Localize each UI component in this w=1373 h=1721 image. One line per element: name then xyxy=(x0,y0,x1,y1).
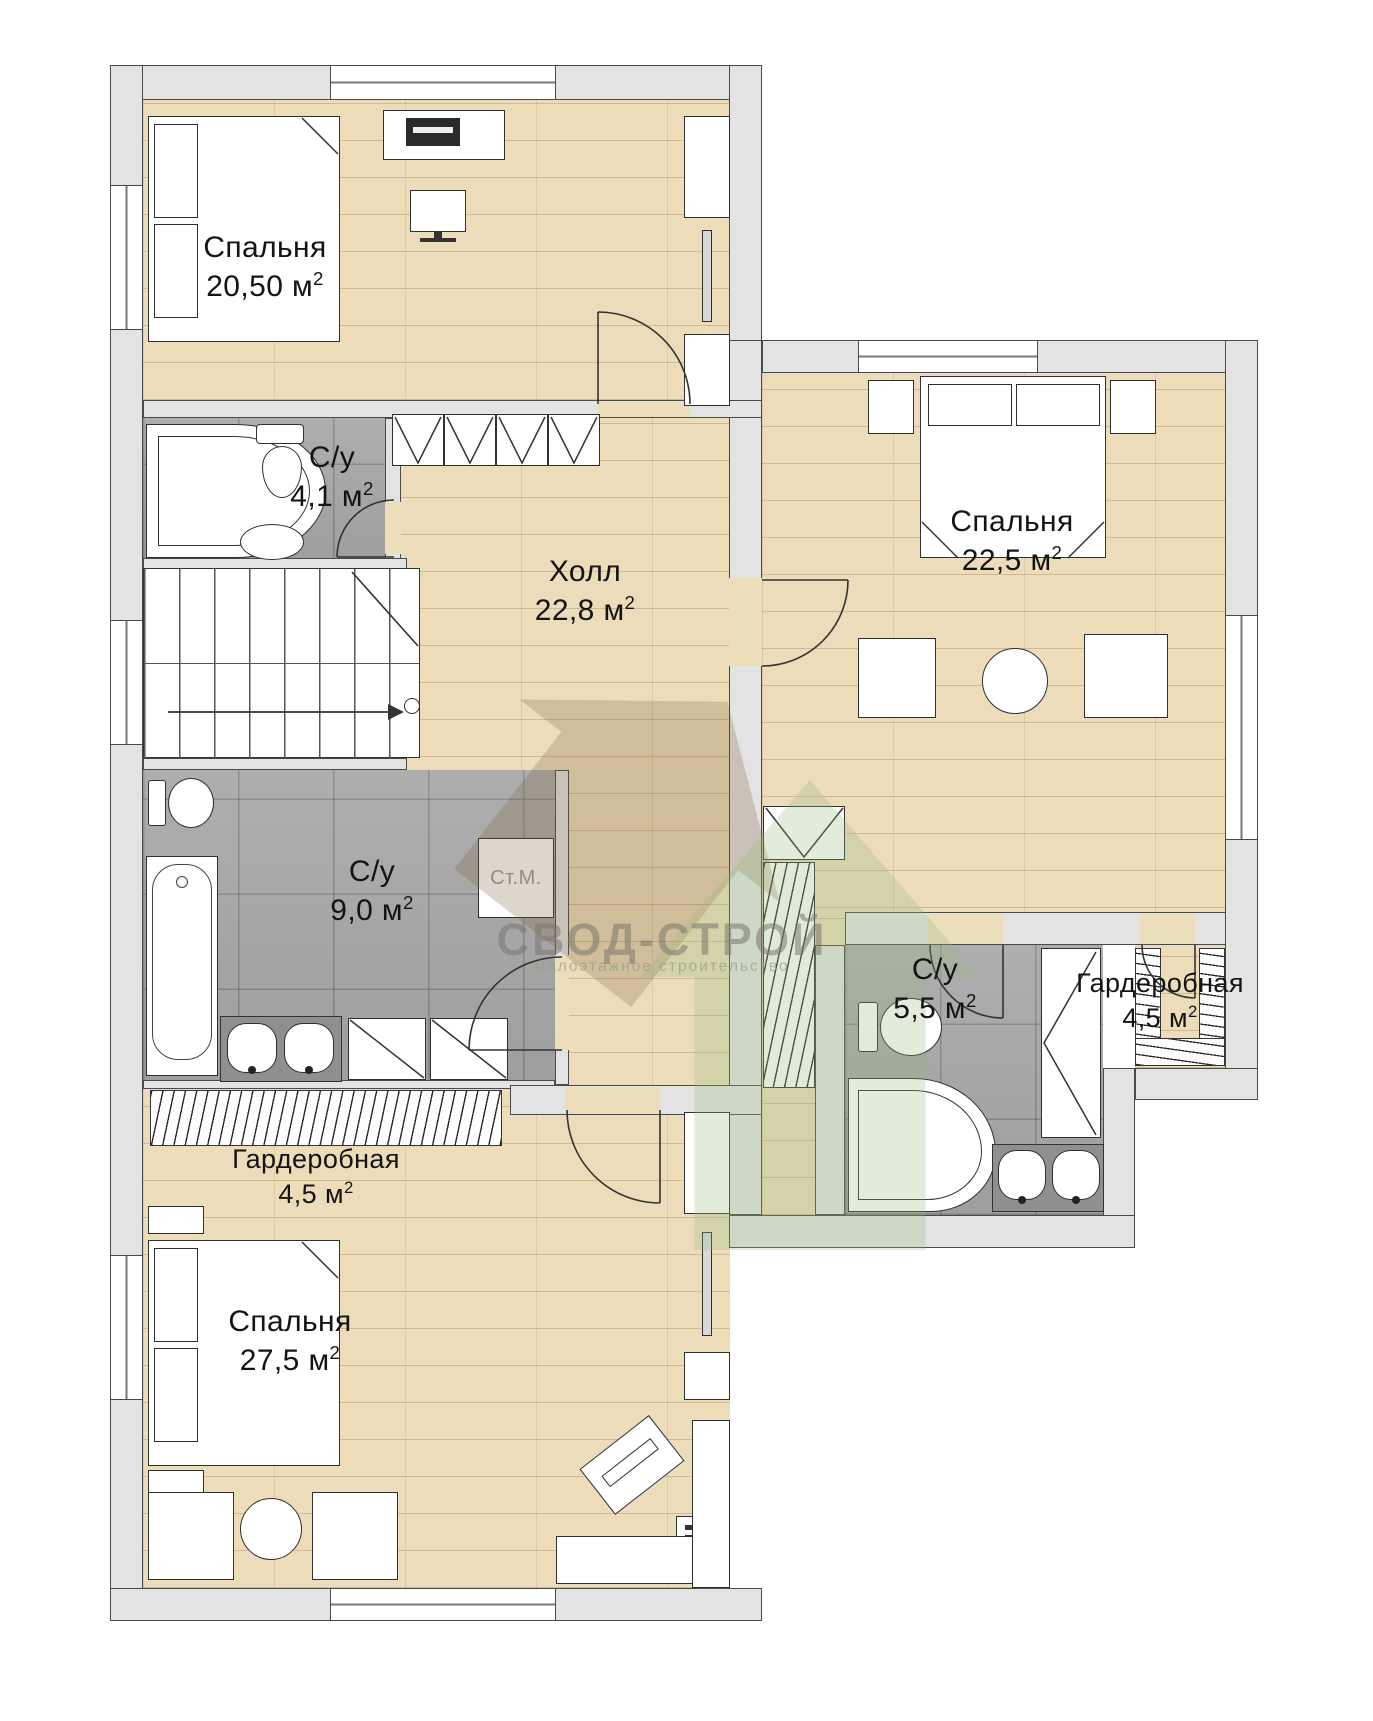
room-name: С/у xyxy=(252,852,492,891)
room-area: 4,5 м2 xyxy=(196,1177,436,1212)
room-label-wardrobe-left: Гардеробная 4,5 м2 xyxy=(196,1142,436,1212)
room-name: Гардеробная xyxy=(196,1142,436,1177)
cabinet-symbol xyxy=(684,1112,730,1214)
monitor-symbol xyxy=(410,190,466,232)
room-label-bedroom-bottom: Спальня 27,5 м2 xyxy=(170,1302,410,1380)
room-area: 9,0 м2 xyxy=(252,891,492,930)
faucet-dot xyxy=(305,1066,313,1074)
stair-flight-up xyxy=(144,569,419,663)
staircase xyxy=(143,568,420,758)
toilet-bowl-symbol xyxy=(168,778,214,828)
armchair-symbol xyxy=(1084,634,1168,718)
nightstand-symbol xyxy=(868,380,914,434)
room-area: 5,5 м2 xyxy=(815,989,1055,1028)
sink-symbol xyxy=(1052,1150,1100,1200)
sink-symbol xyxy=(240,524,304,560)
nightstand-symbol xyxy=(1110,380,1156,434)
faucet-dot xyxy=(248,1066,256,1074)
counter-symbol xyxy=(692,1420,730,1588)
room-area: 27,5 м2 xyxy=(170,1341,410,1380)
window-top xyxy=(330,65,556,100)
pillow-symbol xyxy=(154,124,198,218)
bath-cabinet-symbol xyxy=(430,1018,508,1080)
room-label-bedroom-top-left: Спальня 20,50 м2 xyxy=(145,228,385,306)
wardrobe-rack-symbol xyxy=(150,1090,502,1146)
faucet-dot xyxy=(1018,1196,1026,1204)
pillow-symbol xyxy=(928,384,1012,426)
room-label-hall: Холл 22,8 м2 xyxy=(465,552,705,630)
room-name: Гардеробная xyxy=(1040,966,1280,1001)
stair-handle-knob xyxy=(404,698,420,714)
window-top-right-block xyxy=(858,340,1038,373)
room-label-bedroom-top-right: Спальня 22,5 м2 xyxy=(892,502,1132,580)
wardrobe-rack-symbol xyxy=(1135,1038,1225,1066)
armchair-symbol xyxy=(148,1492,234,1580)
room-name: С/у xyxy=(815,950,1055,989)
room-label-bathroom-small: С/у 4,1 м2 xyxy=(212,438,452,516)
bath-cabinet-symbol xyxy=(348,1018,426,1080)
stair-flight-down xyxy=(144,663,419,758)
tv-panel-symbol xyxy=(702,230,712,322)
armchair-symbol xyxy=(858,638,936,718)
room-area: 22,8 м2 xyxy=(465,591,705,630)
window-bottom xyxy=(330,1588,556,1621)
wall-bathroom-large-bottom xyxy=(143,1080,555,1089)
door-opening-bedroom-bottom xyxy=(565,1087,660,1114)
wardrobe-cabinet-symbol xyxy=(548,414,600,466)
room-area: 20,50 м2 xyxy=(145,267,385,306)
room-label-wardrobe-right: Гардеробная 4,5 м2 xyxy=(1040,966,1280,1036)
sink-symbol xyxy=(998,1150,1046,1200)
room-area: 22,5 м2 xyxy=(892,541,1132,580)
room-name: Холл xyxy=(465,552,705,591)
cabinet-symbol xyxy=(684,1352,730,1400)
room-name: Спальня xyxy=(145,228,385,267)
room-name: Спальня xyxy=(170,1302,410,1341)
cabinet-symbol xyxy=(684,334,730,406)
monitor-base xyxy=(420,238,456,242)
room-area: 4,1 м2 xyxy=(212,477,452,516)
window-left-bedroom-tl xyxy=(110,185,143,330)
faucet-dot xyxy=(1072,1196,1080,1204)
door-opening-bathroom-right xyxy=(928,914,1003,944)
wall-stairs-bottom xyxy=(143,758,407,770)
room-name: С/у xyxy=(212,438,452,477)
bathtub-inner xyxy=(152,864,212,1060)
room-label-bathroom-right: С/у 5,5 м2 xyxy=(815,950,1055,1028)
wardrobe-cabinet-symbol xyxy=(496,414,548,466)
floor-plan-page: { "watermark": { "title": "СВОД-СТРОЙ", … xyxy=(0,0,1373,1721)
round-table-symbol xyxy=(240,1498,302,1560)
pillow-symbol xyxy=(1016,384,1100,426)
door-opening-bedroom-tl xyxy=(598,402,690,417)
tv-panel-symbol xyxy=(702,1232,712,1336)
wall-extension-bottom xyxy=(729,1215,1135,1248)
round-table-symbol xyxy=(982,648,1048,714)
toilet-tank-symbol xyxy=(148,780,166,826)
wall-right-block-bottom xyxy=(1135,1068,1258,1100)
cabinet-symbol xyxy=(763,806,845,860)
cabinet-symbol xyxy=(684,116,730,218)
wall-hall-right xyxy=(729,340,762,1215)
bathtub-drain xyxy=(176,876,188,888)
window-right-block xyxy=(1225,615,1258,840)
door-opening-bedroom-tr xyxy=(729,578,762,666)
room-label-bathroom-large: С/у 9,0 м2 xyxy=(252,852,492,930)
window-left-stairs xyxy=(110,620,143,745)
room-area: 4,5 м2 xyxy=(1040,1001,1280,1036)
room-name: Спальня xyxy=(892,502,1132,541)
closet-rack-symbol xyxy=(763,862,815,1088)
wall-right-upper xyxy=(729,65,762,343)
printer-symbol xyxy=(406,118,460,146)
door-opening-bathroom-large xyxy=(555,955,569,1050)
washing-machine-label: Ст.М. xyxy=(490,867,542,890)
armchair-symbol xyxy=(312,1492,398,1580)
window-left-bedroom-bottom xyxy=(110,1255,143,1400)
door-opening-wardrobe-right xyxy=(1140,914,1195,944)
